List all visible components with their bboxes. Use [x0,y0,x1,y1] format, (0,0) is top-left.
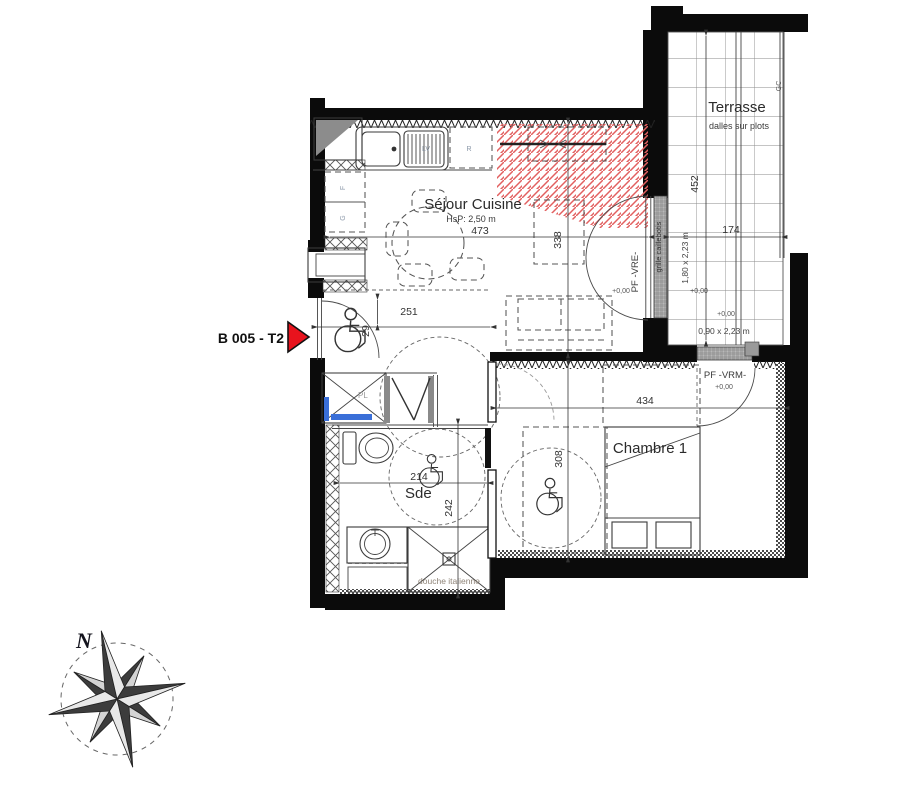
sofa-outline [506,296,612,350]
sejour-name: Séjour Cuisine [424,196,522,213]
wall-left-nub-b [308,278,324,298]
north-label: N [75,628,93,653]
vre-size-label: 1,80 x 2,23 m [680,232,690,284]
sink-unit [356,127,448,170]
niche-inner [316,254,365,276]
compass-rose: N [33,615,201,783]
unit-label: B 005 - T2 [218,330,284,346]
chair-west [386,222,408,256]
insulation-chambre-right [776,363,785,557]
wall-chambre-right [785,345,808,578]
chambre-room: PF -VRM- +0,00 Chambre 1 [485,362,755,558]
turning-circle-sde [389,429,485,525]
lv-label: LV [422,146,430,153]
hatch-kitchen-a [325,160,365,170]
wall-left-nub-a [308,240,324,252]
hatch-sde-left [326,425,339,592]
insulation-chambre-bottom [498,550,785,558]
wall-terrasse-top [651,14,808,32]
toilet-bowl-inner [366,438,389,458]
entree-hall: PL [318,298,501,457]
tall-unit-top-label: F [340,186,347,190]
wall-terrasse-top-nub [651,6,683,15]
dim-434: 434 [636,395,654,407]
terrasse-finish: dalles sur plots [709,121,770,131]
closet-label: PL [358,391,368,400]
sde-door-leaf [392,378,430,420]
entrance-marker: B 005 - T2 [218,322,309,352]
sde-name: Sde [405,485,432,502]
grille-caillebotis-label: grille caillebotis [654,221,663,272]
terrasse-tiles [668,32,783,345]
wall-terrasse-bottom-left [653,345,697,362]
vrm-level: +0,00 [715,384,733,391]
wall-sde-bottom [325,594,505,610]
fridge-label: R [466,146,471,153]
terrasse-level-upper: +0,00 [690,288,708,295]
faucet-icon [392,147,397,152]
turning-circle-hall [380,337,500,457]
dim-29: 29 [360,325,372,337]
wall-terrasse-right [790,253,808,347]
floor-plan-drawing: Terrasse dalles sur plots GC +0,00 +0,00… [0,0,917,800]
compass-star [33,615,201,783]
terrasse-gc-label: GC [776,81,783,92]
vrm-label: PF -VRM- [704,370,746,381]
vanity-cabinet [347,527,407,563]
chambre-name: Chambre 1 [613,440,687,457]
chambre-door-swing [497,364,554,421]
wall-left-lower [310,358,325,608]
niche-outer [308,248,365,282]
terrasse-level-lower: +0,00 [717,311,735,318]
sde-door-jamb-right [428,376,434,423]
toilet-tank [343,432,356,464]
clearance-zone-bed [523,427,607,553]
pillow-right [656,522,691,548]
toilet-bowl [359,433,393,463]
dim-308: 308 [553,450,565,468]
chair-south-east [450,258,484,280]
wall-hall-chambre-upper [488,362,496,422]
chambre-door-leaf [485,428,491,468]
terrasse-name: Terrasse [708,99,766,116]
appliance-slot [348,567,407,592]
wheelchair-icon-chambre [537,478,562,514]
sejour-ceiling: HsP: 2,50 m [446,214,496,224]
basin-faucet-icon [371,530,379,536]
washbasin-inner [365,534,386,555]
pillow-left [612,522,647,548]
dim-452: 452 [689,175,701,193]
sde-door-jamb-left [384,376,390,423]
dim-174: 174 [722,224,740,236]
terrasse-corner-pad [745,342,759,356]
tall-unit-bottom-label: G [340,215,347,220]
wall-chambre-bottom [490,558,808,578]
dim-251: 251 [400,306,418,318]
dim-242: 242 [443,499,455,517]
vre-label: PF -VRE- [630,252,641,293]
vre-jamb-bottom [643,318,653,324]
closet-blue-horizontal [331,414,372,420]
vrm-window-grille [697,347,752,360]
closet-blue-vertical [324,397,329,421]
shower-label: douche italienne [418,576,480,586]
chair-south-west [398,264,432,286]
wall-sejour-chambre [490,352,655,361]
wall-step-connector [490,558,505,610]
dim-473: 473 [471,225,489,237]
wall-hall-chambre-lower [488,470,496,558]
dim-214: 214 [410,471,428,483]
terrasse-room: Terrasse dalles sur plots GC +0,00 +0,00… [654,32,784,360]
floor-plan-page: Terrasse dalles sur plots GC +0,00 +0,00… [0,0,917,800]
dim-338: 338 [552,231,564,249]
sejour-level: +0,00 [612,288,630,295]
sde-room: Sde douche italienne [343,429,490,592]
entrance-arrow-icon [288,322,309,352]
